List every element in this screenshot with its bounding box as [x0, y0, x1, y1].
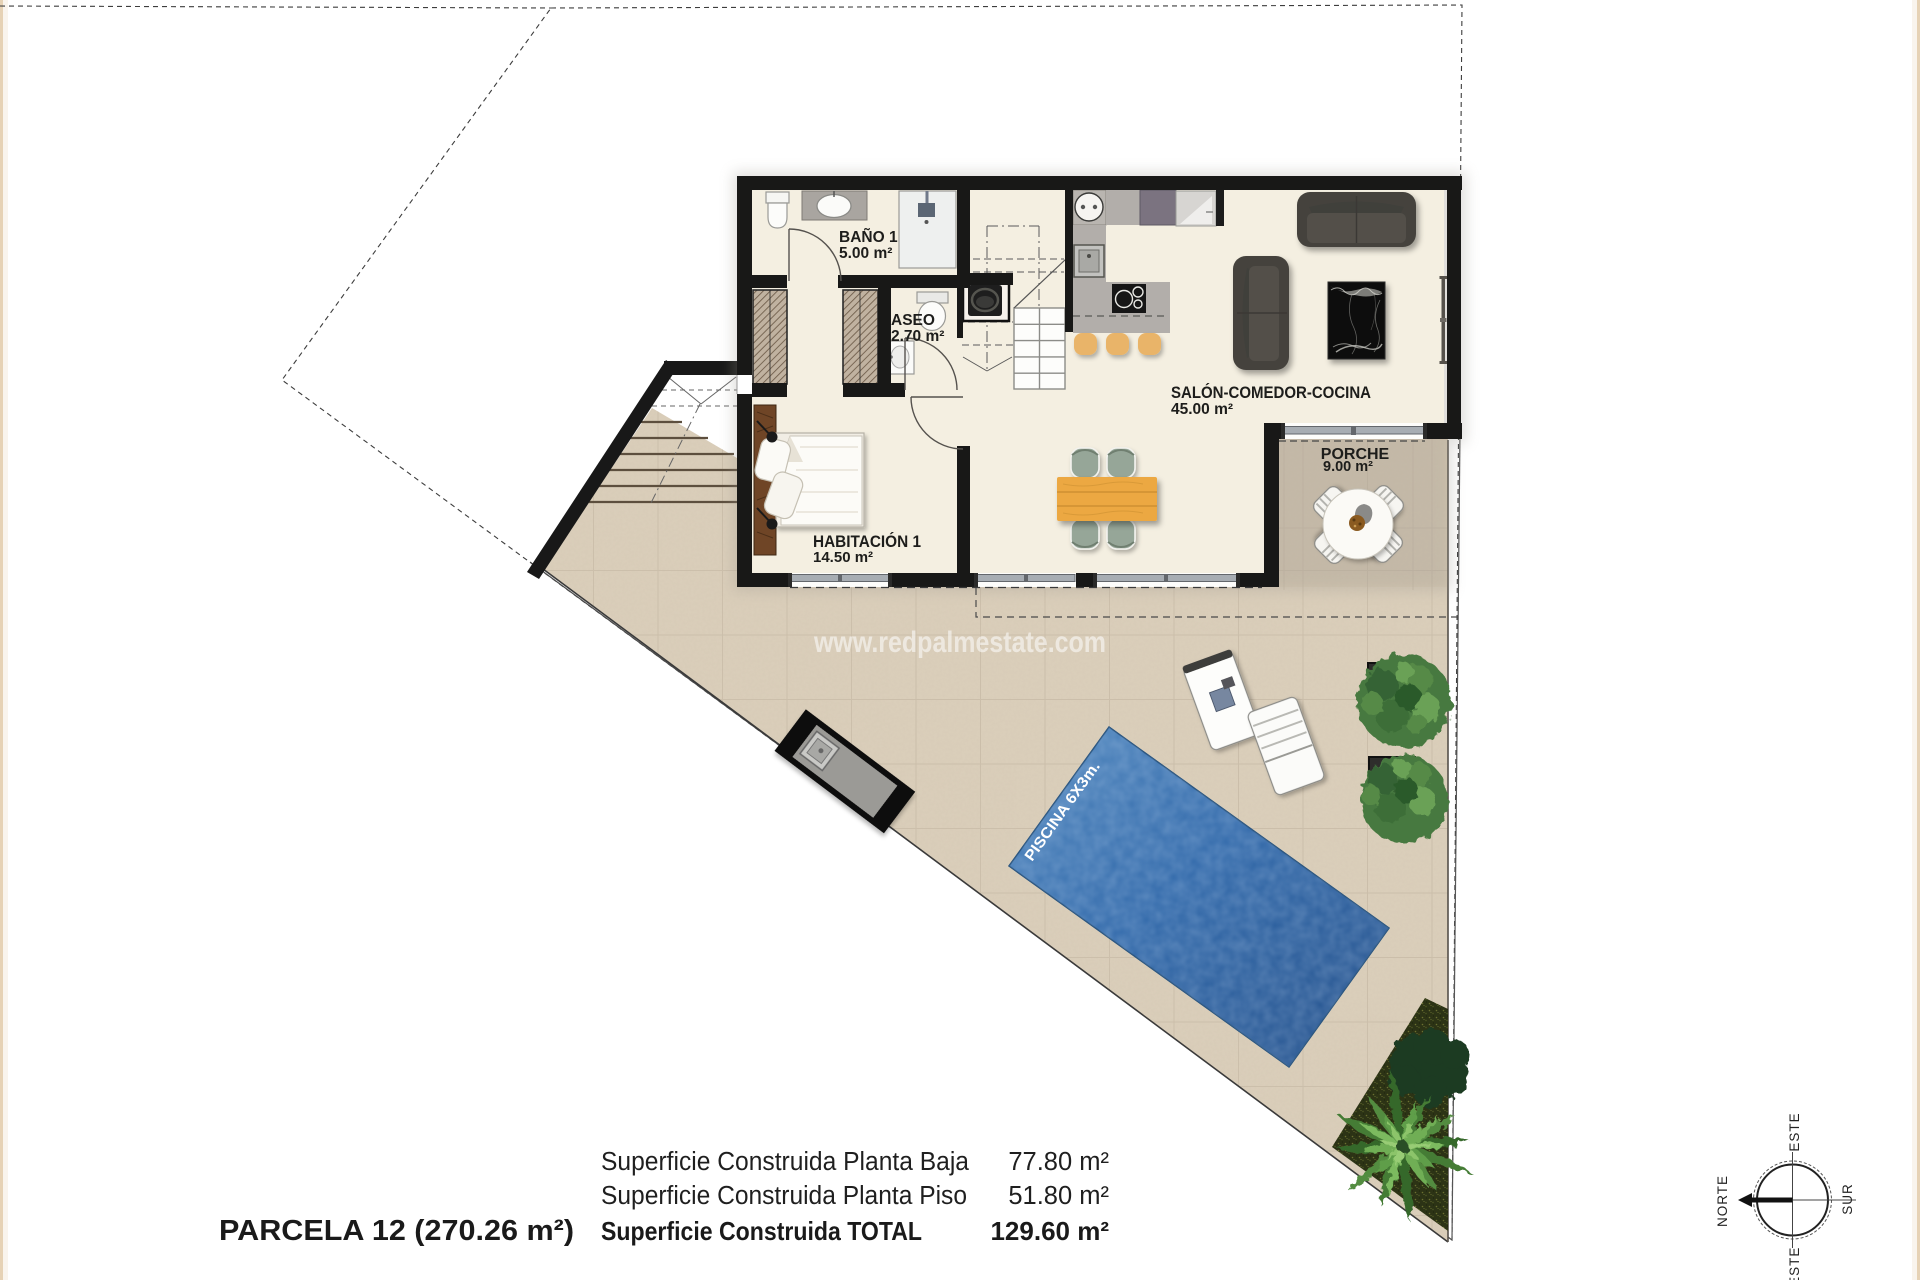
svg-text:Superficie Construida Planta P: Superficie Construida Planta Piso: [601, 1182, 967, 1210]
svg-text:NORTE: NORTE: [1715, 1175, 1730, 1227]
svg-text:129.60 m²: 129.60 m²: [990, 1216, 1109, 1246]
svg-text:51.80 m²: 51.80 m²: [1008, 1182, 1109, 1210]
svg-text:14.50 m²: 14.50 m²: [813, 549, 873, 566]
svg-text:Superficie Construida Planta B: Superficie Construida Planta Baja: [601, 1148, 970, 1176]
svg-text:Superficie Construida TOTAL: Superficie Construida TOTAL: [601, 1216, 922, 1246]
svg-text:SALÓN-COMEDOR-COCINA: SALÓN-COMEDOR-COCINA: [1171, 383, 1371, 402]
svg-text:2.70 m²: 2.70 m²: [891, 328, 944, 345]
svg-text:ASEO: ASEO: [891, 312, 935, 329]
svg-text:ESTE: ESTE: [1787, 1112, 1802, 1151]
svg-text:PARCELA 12 (270.26 m²): PARCELA 12 (270.26 m²): [219, 1215, 574, 1247]
svg-text:OESTE: OESTE: [1787, 1247, 1802, 1280]
svg-text:SUR: SUR: [1840, 1183, 1855, 1215]
svg-text:45.00 m²: 45.00 m²: [1171, 401, 1233, 418]
svg-text:5.00 m²: 5.00 m²: [839, 245, 892, 262]
svg-text:BAÑO 1: BAÑO 1: [839, 228, 898, 246]
svg-text:www.redpalmestate.com: www.redpalmestate.com: [813, 626, 1106, 659]
svg-text:77.80 m²: 77.80 m²: [1008, 1148, 1109, 1176]
svg-text:9.00 m²: 9.00 m²: [1323, 459, 1373, 475]
